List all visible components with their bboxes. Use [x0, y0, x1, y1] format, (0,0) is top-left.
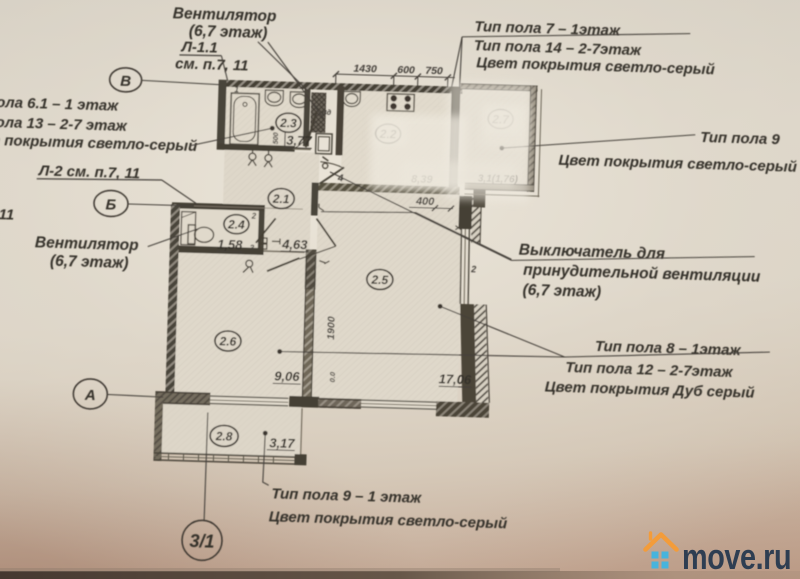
svg-text:1,58: 1,58 — [217, 237, 244, 253]
svg-text:В: В — [120, 73, 131, 90]
svg-text:0.0: 0.0 — [328, 371, 337, 383]
svg-text:Тип пола 6.1 – 1 этаж: Тип пола 6.1 – 1 этаж — [0, 93, 119, 115]
svg-text:3,17: 3,17 — [269, 435, 296, 451]
svg-text:9,06: 9,06 — [274, 368, 301, 384]
svg-text:1430: 1430 — [353, 63, 377, 76]
svg-text:Тип пола 12 – 2-7этаж: Тип пола 12 – 2-7этаж — [565, 359, 734, 381]
svg-text:2: 2 — [251, 212, 257, 221]
svg-text:3,77: 3,77 — [286, 133, 313, 149]
svg-text:Цвет покрытия светло-серый: Цвет покрытия светло-серый — [269, 508, 508, 532]
svg-text:2: 2 — [470, 264, 476, 274]
svg-text:Вд: Вд — [322, 109, 332, 117]
svg-text:Цвет покрытия светло-серый: Цвет покрытия светло-серый — [0, 131, 197, 155]
svg-text:Тип пола 13 – 2-7 этаж: Тип пола 13 – 2-7 этаж — [0, 113, 128, 135]
svg-text:Б: Б — [105, 196, 116, 213]
svg-text:400: 400 — [415, 196, 436, 209]
svg-text:Цвет покрытия светло-серый: Цвет покрытия светло-серый — [558, 152, 797, 176]
svg-text:4,63: 4,63 — [281, 237, 309, 253]
svg-text:500: 500 — [273, 132, 280, 144]
svg-text:2.6: 2.6 — [218, 334, 236, 349]
svg-text:2.1: 2.1 — [272, 192, 290, 207]
svg-text:Цвет покрытия светло-серый: Цвет покрытия светло-серый — [476, 54, 715, 78]
svg-text:3/1: 3/1 — [189, 531, 215, 552]
svg-text:3: 3 — [250, 244, 255, 253]
svg-text:А: А — [84, 387, 96, 404]
svg-text:2.5: 2.5 — [370, 273, 388, 288]
svg-text:1: 1 — [234, 85, 239, 94]
svg-text:Тип пола 9: Тип пола 9 — [700, 129, 781, 148]
svg-text:move.ru: move.ru — [682, 536, 791, 577]
svg-text:Тип пола 9 – 1 этаж: Тип пола 9 – 1 этаж — [271, 485, 422, 506]
svg-text:2.8: 2.8 — [215, 429, 233, 444]
svg-text:2.3: 2.3 — [279, 116, 297, 131]
svg-text:600: 600 — [397, 64, 415, 77]
svg-text:Л-1.1: Л-1.1 — [180, 38, 218, 56]
svg-text:(6,7 этаж): (6,7 этаж) — [50, 253, 129, 272]
svg-text:(6,7 этаж): (6,7 этаж) — [522, 282, 601, 301]
svg-text:17,06: 17,06 — [438, 371, 472, 387]
svg-text:1900: 1900 — [325, 316, 338, 340]
svg-text:11: 11 — [0, 206, 14, 223]
svg-text:750: 750 — [425, 65, 443, 78]
svg-text:Вентилятор: Вентилятор — [35, 234, 139, 254]
svg-text:2.4: 2.4 — [227, 217, 245, 232]
svg-text:Цвет покрытия Дуб серый: Цвет покрытия Дуб серый — [544, 378, 754, 401]
svg-text:см. п.7, 11: см. п.7, 11 — [175, 55, 249, 74]
